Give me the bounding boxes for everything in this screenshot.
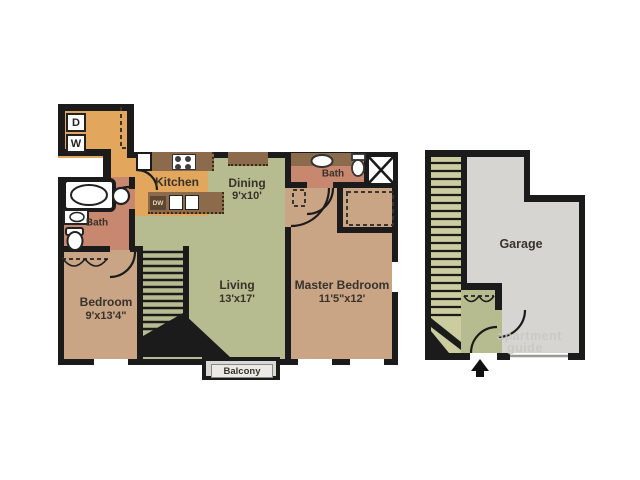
wall-laundry-top <box>58 104 134 111</box>
bedroom-dims: 9'x13'4" <box>85 310 126 322</box>
garage-floor-upper <box>461 157 524 201</box>
wall-notch <box>103 149 111 183</box>
living-label: Living <box>219 278 254 292</box>
master-bedroom-label: Master Bedroom <box>295 278 390 292</box>
watermark: apartment guide <box>497 330 562 354</box>
wall-laundry-right <box>127 104 134 158</box>
watermark-line2: guide <box>507 342 562 354</box>
kitchen-label: Kitchen <box>155 175 199 189</box>
dining-cabinet-strip <box>228 152 268 166</box>
wall-garage-right-upper <box>524 150 530 201</box>
dining-label: Dining <box>228 176 265 190</box>
dishwasher-label: DW <box>153 200 164 207</box>
garage-stairs-floor <box>431 157 461 353</box>
dryer-box: D <box>66 113 86 132</box>
wall-garage-stair <box>461 157 467 290</box>
wall-bath-top <box>58 177 103 183</box>
kitchen-stove <box>172 154 196 170</box>
wall-garage-left <box>425 150 431 360</box>
wall-garage-notch <box>524 195 585 202</box>
wall-bath-right-b <box>129 209 135 250</box>
bath-master-label: Bath <box>322 169 344 180</box>
balcony-box: Balcony <box>202 357 280 380</box>
kitchen-sink-box <box>136 152 152 171</box>
wall-masterbath-bottom-a <box>291 182 307 188</box>
dryer-label: D <box>72 117 80 129</box>
floorplan-canvas: D W DW Balcony <box>0 0 640 480</box>
window-master-1 <box>298 359 332 365</box>
master-bedroom-dims: 11'5"x12' <box>319 293 366 305</box>
balcony-inner: Balcony <box>211 364 273 378</box>
wall-bath-bedroom-a <box>58 246 110 252</box>
window-bedroom <box>94 359 128 365</box>
masterbath-shower <box>364 152 398 188</box>
wall-stair-right <box>183 246 189 330</box>
wall-bath-right-a <box>129 177 135 189</box>
dishwasher-box: DW <box>150 196 166 210</box>
wall-garage-bottom-a <box>425 353 470 360</box>
bath-main-label: Bath <box>86 218 108 229</box>
garage-label: Garage <box>499 237 542 251</box>
washer-label: W <box>71 138 81 150</box>
wall-garage-bottom-c <box>568 353 585 360</box>
masterbath-counter <box>291 153 353 166</box>
kitchen-double-sink-1 <box>169 195 183 210</box>
bedroom-label: Bedroom <box>80 295 133 309</box>
entry-arrow-icon <box>471 359 489 377</box>
wall-entry-right <box>495 283 502 310</box>
living-dims: 13'x17' <box>219 293 255 305</box>
wall-master-left-b <box>285 227 291 365</box>
wall-stair-left <box>137 246 143 365</box>
bath-main-floor <box>58 177 135 250</box>
balcony-label: Balcony <box>224 366 261 377</box>
kitchen-double-sink-2 <box>185 195 199 210</box>
window-master-2 <box>350 359 384 365</box>
wall-garage-right <box>579 195 585 360</box>
dining-dims: 9'x10' <box>232 190 262 202</box>
wall-main-left <box>58 177 64 365</box>
washer-box: W <box>66 134 86 153</box>
wall-garage-top <box>425 150 530 157</box>
wall-closet-bottom <box>337 227 398 233</box>
window-master-right <box>392 262 398 292</box>
